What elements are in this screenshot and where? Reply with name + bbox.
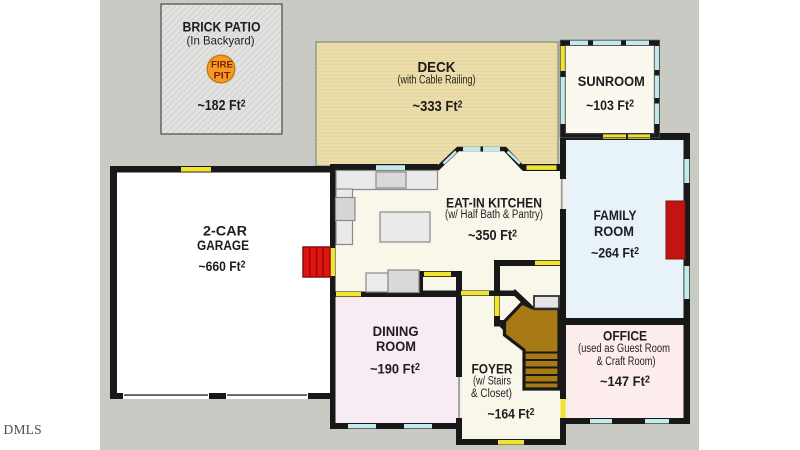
svg-text:BRICK PATIO: BRICK PATIO [183, 20, 261, 35]
svg-text:~182 Ft2: ~182 Ft2 [198, 98, 246, 114]
svg-text:~164 Ft2: ~164 Ft2 [488, 406, 535, 422]
svg-text:(In Backyard): (In Backyard) [187, 34, 255, 48]
svg-text:~264 Ft2: ~264 Ft2 [591, 245, 639, 261]
svg-text:DINING: DINING [373, 324, 419, 339]
svg-text:FOYER: FOYER [472, 361, 513, 376]
svg-text:(with Cable Railing): (with Cable Railing) [398, 75, 476, 87]
svg-text:SUNROOM: SUNROOM [578, 74, 645, 89]
svg-text:(used as Guest Room: (used as Guest Room [578, 343, 670, 355]
svg-text:~147 Ft2: ~147 Ft2 [600, 373, 650, 389]
svg-text:& Craft Room): & Craft Room) [597, 356, 656, 368]
svg-text:& Closet): & Closet) [471, 388, 512, 400]
svg-text:GARAGE: GARAGE [197, 238, 249, 253]
svg-text:~333 Ft2: ~333 Ft2 [413, 98, 463, 115]
svg-text:~660 Ft2: ~660 Ft2 [199, 258, 246, 274]
svg-text:ROOM: ROOM [594, 224, 634, 239]
svg-text:ROOM: ROOM [376, 339, 416, 354]
svg-text:DECK: DECK [418, 59, 456, 76]
svg-text:PIT: PIT [214, 71, 231, 82]
svg-text:2-CAR: 2-CAR [203, 224, 247, 239]
svg-text:~190 Ft2: ~190 Ft2 [370, 361, 420, 377]
svg-text:~350 Ft2: ~350 Ft2 [468, 228, 517, 244]
svg-text:(w/ Half Bath & Pantry): (w/ Half Bath & Pantry) [445, 209, 543, 221]
svg-text:FIRE: FIRE [211, 60, 233, 71]
svg-text:OFFICE: OFFICE [603, 329, 647, 344]
svg-text:~103 Ft2: ~103 Ft2 [586, 97, 634, 113]
svg-text:(w/ Stairs: (w/ Stairs [473, 375, 511, 387]
svg-text:FAMILY: FAMILY [594, 208, 637, 223]
svg-text:DMLS: DMLS [4, 422, 42, 437]
